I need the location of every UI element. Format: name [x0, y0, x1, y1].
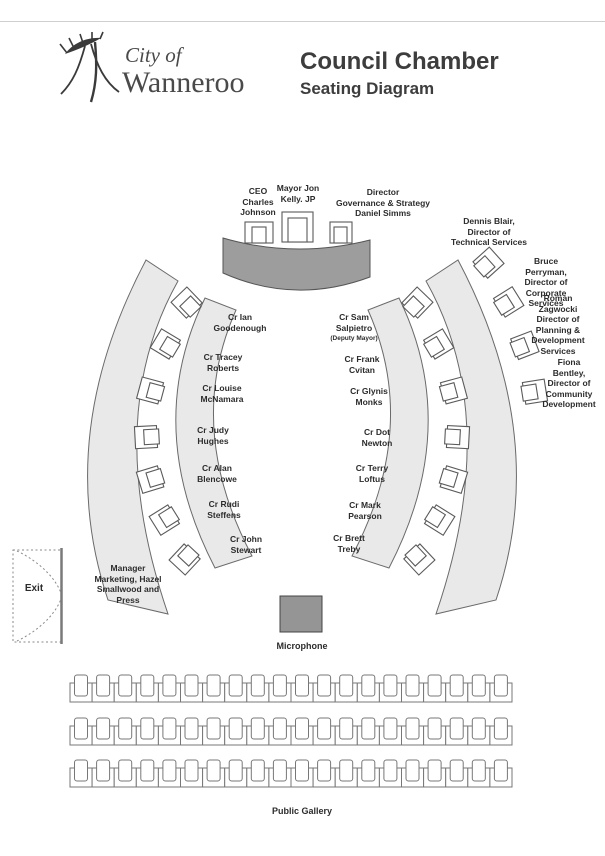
gallery-chair-back-row3-16 — [406, 760, 419, 781]
gallery-chair-back-row1-13 — [340, 675, 353, 696]
seat-label-cr-stewart: Cr John Stewart — [230, 534, 262, 555]
gallery-chair-back-row3-2 — [97, 760, 110, 781]
gallery-chair-back-row1-1 — [75, 675, 88, 696]
gallery-chair-back-row1-16 — [406, 675, 419, 696]
chair-part — [439, 383, 457, 401]
seat-label-mayor: Mayor Jon Kelly. JP — [277, 183, 320, 204]
microphone-block — [280, 596, 322, 632]
gallery-chair-back-row1-8 — [229, 675, 242, 696]
ceo-chair-seat — [252, 227, 266, 243]
mayor-chair-seat — [288, 218, 307, 242]
gallery-chair-back-row1-15 — [384, 675, 397, 696]
chair-part — [146, 383, 164, 401]
councillor-chair-left-6 — [149, 504, 181, 535]
gallery-chair-back-row3-13 — [340, 760, 353, 781]
gallery-chair-back-row2-9 — [251, 718, 264, 739]
gallery-chair-back-row2-18 — [450, 718, 463, 739]
gallery-chair-back-row3-11 — [296, 760, 309, 781]
exit-label: Exit — [25, 584, 43, 595]
councillor-chair-left-5 — [136, 465, 165, 493]
gallery-chair-back-row2-10 — [273, 718, 286, 739]
press-desk-label: Manager Marketing, Hazel Smallwood and P… — [94, 563, 161, 605]
gallery-chair-back-row3-8 — [229, 760, 242, 781]
gallery-chair-back-row1-10 — [273, 675, 286, 696]
gallery-chair-back-row3-5 — [163, 760, 176, 781]
gallery-chair-back-row3-20 — [494, 760, 507, 781]
seat-label-cr-blencowe: Cr Alan Blencowe — [197, 463, 237, 484]
gallery-chair-back-row2-13 — [340, 718, 353, 739]
seat-label-cr-steffens: Cr Rudi Steffens — [207, 499, 241, 520]
seat-label-roman-zagwocki: Roman Zagwocki Director of Planning & De… — [531, 293, 584, 356]
chamber-floorplan — [0, 0, 605, 856]
gallery-chair-back-row2-11 — [296, 718, 309, 739]
councillor-chair-right-7 — [402, 542, 434, 575]
seat-label-cr-loftus: Cr Terry Loftus — [356, 463, 388, 484]
gallery-chair-back-row1-20 — [494, 675, 507, 696]
gallery-chair-back-row3-3 — [119, 760, 132, 781]
seat-label-cr-newton: Cr Dot Newton — [362, 427, 393, 448]
gallery-chair-back-row2-19 — [472, 718, 485, 739]
seat-label-dennis-blair: Dennis Blair, Director of Technical Serv… — [451, 216, 527, 248]
gallery-chair-back-row1-18 — [450, 675, 463, 696]
seat-label-cr-monks: Cr Glynis Monks — [350, 386, 388, 407]
gallery-chair-back-row1-4 — [141, 675, 154, 696]
seat-label-fiona-bentley: Fiona Bentley, Director of Community Dev… — [542, 357, 595, 410]
council-chamber-seating-diagram: City of Wanneroo Council Chamber Seating… — [0, 0, 605, 856]
gallery-chair-back-row3-14 — [362, 760, 375, 781]
director-chair-1 — [471, 247, 504, 279]
public-gallery-label: Public Gallery — [272, 806, 332, 817]
gallery-chair-back-row1-2 — [97, 675, 110, 696]
dais-bench — [223, 238, 370, 290]
gallery-chair-back-row3-7 — [207, 760, 220, 781]
chair-part — [445, 429, 461, 445]
gallery-chair-back-row2-7 — [207, 718, 220, 739]
seat-label-director-governance: Director Governance & Strategy Daniel Si… — [336, 187, 430, 219]
seat-label-cr-roberts: Cr Tracey Roberts — [204, 352, 243, 373]
gallery-chair-back-row2-6 — [185, 718, 198, 739]
gallery-chair-back-row1-6 — [185, 675, 198, 696]
gallery-chair-back-row2-8 — [229, 718, 242, 739]
seat-label-cr-pearson: Cr Mark Pearson — [348, 500, 382, 521]
seat-label-ceo: CEO Charles Johnson — [240, 186, 275, 218]
gallery-chair-back-row3-1 — [75, 760, 88, 781]
exit-door-swing-bottom — [17, 599, 61, 641]
councillor-chair-left-4 — [134, 425, 159, 448]
councillor-chair-right-6 — [423, 504, 455, 535]
gallery-chair-back-row2-17 — [428, 718, 441, 739]
gallery-chair-back-row2-2 — [97, 718, 110, 739]
gallery-chair-back-row2-1 — [75, 718, 88, 739]
gallery-chair-back-row1-14 — [362, 675, 375, 696]
gallery-chair-back-row3-15 — [384, 760, 397, 781]
gallery-chair-back-row1-11 — [296, 675, 309, 696]
councillor-chair-right-4 — [444, 425, 469, 448]
councillor-chair-left-3 — [137, 377, 166, 404]
councillor-chair-right-5 — [438, 465, 467, 493]
seat-label-cr-treby: Cr Brett Treby — [333, 533, 365, 554]
gallery-chair-back-row3-9 — [251, 760, 264, 781]
gallery-chair-back-row2-16 — [406, 718, 419, 739]
gallery-chair-back-row1-3 — [119, 675, 132, 696]
director-governance-chair-seat — [334, 227, 347, 243]
gallery-chair-back-row1-7 — [207, 675, 220, 696]
gallery-chair-back-row2-14 — [362, 718, 375, 739]
gallery-chair-back-row2-20 — [494, 718, 507, 739]
seat-label-cr-mcnamara: Cr Louise McNamara — [201, 383, 244, 404]
chair-part — [144, 429, 160, 445]
gallery-chair-back-row3-6 — [185, 760, 198, 781]
seat-label-cr-salpietro: Cr Sam Salpietro — [336, 312, 372, 333]
councillor-chair-right-3 — [439, 377, 468, 404]
press-desk-arc — [88, 260, 178, 614]
gallery-chair-back-row3-17 — [428, 760, 441, 781]
gallery-chair-back-row1-19 — [472, 675, 485, 696]
gallery-chair-back-row2-12 — [318, 718, 331, 739]
gallery-chair-back-row1-12 — [318, 675, 331, 696]
gallery-chair-back-row3-19 — [472, 760, 485, 781]
seat-label-cr-hughes: Cr Judy Hughes — [197, 425, 229, 446]
seat-label-cr-cvitan: Cr Frank Cvitan — [345, 354, 380, 375]
gallery-chair-back-row2-15 — [384, 718, 397, 739]
gallery-chair-back-row2-4 — [141, 718, 154, 739]
seat-label-cr-goodenough: Cr Ian Goodenough — [214, 312, 267, 333]
gallery-chair-back-row2-3 — [119, 718, 132, 739]
gallery-chair-back-row1-17 — [428, 675, 441, 696]
chair-part — [521, 384, 538, 401]
gallery-chair-back-row1-5 — [163, 675, 176, 696]
gallery-chair-back-row2-5 — [163, 718, 176, 739]
seat-label-deputy-mayor-note: (Deputy Mayor) — [330, 335, 377, 343]
gallery-chair-back-row3-10 — [273, 760, 286, 781]
microphone-label: Microphone — [277, 641, 328, 652]
gallery-chair-back-row3-4 — [141, 760, 154, 781]
gallery-chair-back-row3-12 — [318, 760, 331, 781]
gallery-chair-back-row1-9 — [251, 675, 264, 696]
councillor-chair-left-7 — [169, 542, 201, 575]
gallery-chair-back-row3-18 — [450, 760, 463, 781]
